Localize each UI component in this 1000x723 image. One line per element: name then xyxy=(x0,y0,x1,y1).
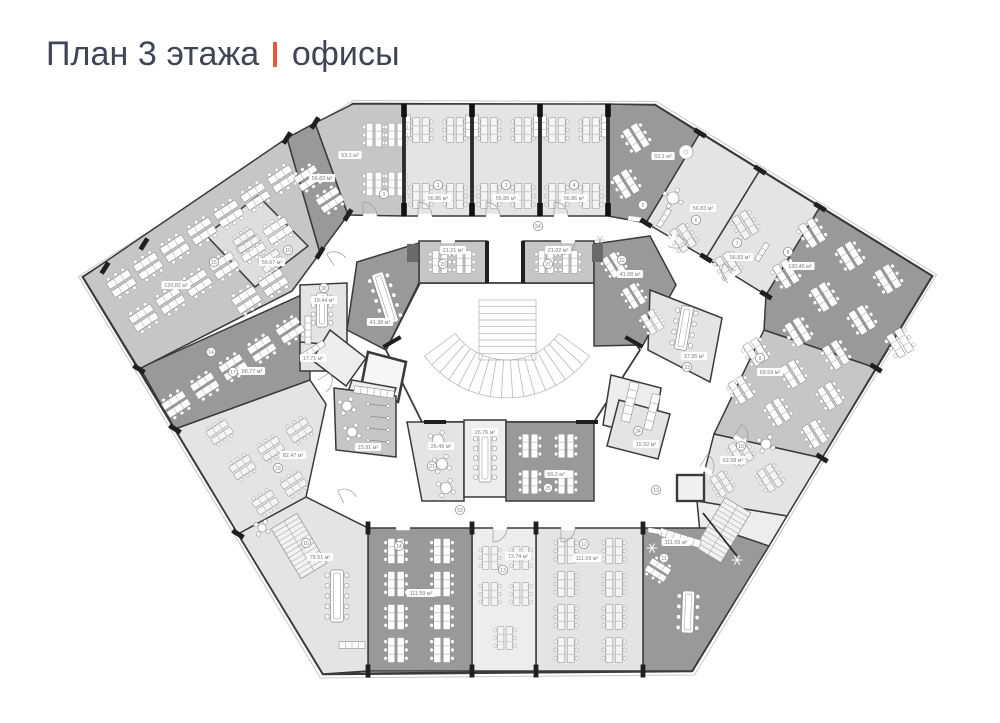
svg-text:111.59 м²: 111.59 м² xyxy=(665,540,688,546)
svg-text:111.59 м²: 111.59 м² xyxy=(410,591,433,597)
svg-text:21.21 м²: 21.21 м² xyxy=(443,248,464,254)
svg-text:17.71 м²: 17.71 м² xyxy=(303,356,324,362)
svg-text:7: 7 xyxy=(736,241,739,247)
svg-text:25: 25 xyxy=(545,486,551,492)
svg-text:26.49 м²: 26.49 м² xyxy=(431,444,452,450)
svg-text:56.83 м²: 56.83 м² xyxy=(730,255,751,261)
svg-text:29: 29 xyxy=(440,262,446,268)
svg-text:62.58 м²: 62.58 м² xyxy=(723,458,744,464)
svg-text:41.38 м²: 41.38 м² xyxy=(370,320,391,326)
svg-text:53.1 м²: 53.1 м² xyxy=(654,154,672,160)
svg-text:17: 17 xyxy=(230,370,236,376)
svg-text:24: 24 xyxy=(635,429,641,435)
svg-text:13: 13 xyxy=(500,568,506,574)
svg-text:6: 6 xyxy=(695,218,698,224)
svg-text:15: 15 xyxy=(303,541,309,547)
svg-text:12: 12 xyxy=(581,542,587,548)
svg-text:37.95 м²: 37.95 м² xyxy=(684,354,705,360)
svg-text:22: 22 xyxy=(619,258,625,264)
svg-text:120.46 м²: 120.46 м² xyxy=(788,264,812,270)
svg-text:1: 1 xyxy=(383,192,386,198)
svg-text:30: 30 xyxy=(321,286,327,292)
svg-text:18: 18 xyxy=(275,466,281,472)
svg-text:41.08 м²: 41.08 м² xyxy=(620,272,641,278)
svg-text:56.86 м²: 56.86 м² xyxy=(496,196,517,202)
svg-text:120.82 м²: 120.82 м² xyxy=(164,283,188,289)
svg-text:23: 23 xyxy=(684,365,690,371)
svg-text:8: 8 xyxy=(787,250,790,256)
svg-text:26.76 м²: 26.76 м² xyxy=(475,430,496,436)
svg-text:11: 11 xyxy=(661,556,666,562)
svg-text:56.67 м²: 56.67 м² xyxy=(262,260,283,266)
svg-text:56.82 м²: 56.82 м² xyxy=(312,176,333,182)
svg-text:56.86 м²: 56.86 м² xyxy=(428,196,449,202)
svg-text:53: 53 xyxy=(457,508,463,514)
svg-text:14: 14 xyxy=(396,544,402,550)
svg-text:56.83 м²: 56.83 м² xyxy=(693,206,714,212)
svg-text:54: 54 xyxy=(535,224,541,230)
svg-text:78.51 м²: 78.51 м² xyxy=(310,555,331,561)
svg-text:111.59 м²: 111.59 м² xyxy=(576,556,599,562)
svg-text:13: 13 xyxy=(653,488,659,494)
svg-text:9: 9 xyxy=(759,356,762,362)
svg-text:82.47 м²: 82.47 м² xyxy=(283,453,304,459)
svg-text:88.77 м²: 88.77 м² xyxy=(242,369,263,375)
svg-text:56.2 м²: 56.2 м² xyxy=(547,472,565,478)
svg-text:10: 10 xyxy=(738,444,744,450)
svg-text:5: 5 xyxy=(642,203,645,209)
svg-text:3: 3 xyxy=(505,183,508,189)
svg-text:19.44 м²: 19.44 м² xyxy=(314,298,335,304)
svg-text:21: 21 xyxy=(429,464,435,470)
svg-text:14: 14 xyxy=(208,350,214,356)
svg-text:16: 16 xyxy=(211,260,217,266)
svg-text:73.74 м²: 73.74 м² xyxy=(508,554,529,560)
svg-text:15.91 м²: 15.91 м² xyxy=(358,445,379,451)
svg-text:27: 27 xyxy=(545,262,551,268)
svg-text:15.92 м²: 15.92 м² xyxy=(636,442,657,448)
svg-text:21.02 м²: 21.02 м² xyxy=(548,248,569,254)
svg-text:4: 4 xyxy=(573,183,576,189)
svg-text:19: 19 xyxy=(285,248,291,254)
svg-text:69.59 м²: 69.59 м² xyxy=(760,370,781,376)
svg-text:56.86 м²: 56.86 м² xyxy=(564,196,585,202)
svg-text:2: 2 xyxy=(437,183,440,189)
svg-text:53.1 м²: 53.1 м² xyxy=(341,153,359,159)
